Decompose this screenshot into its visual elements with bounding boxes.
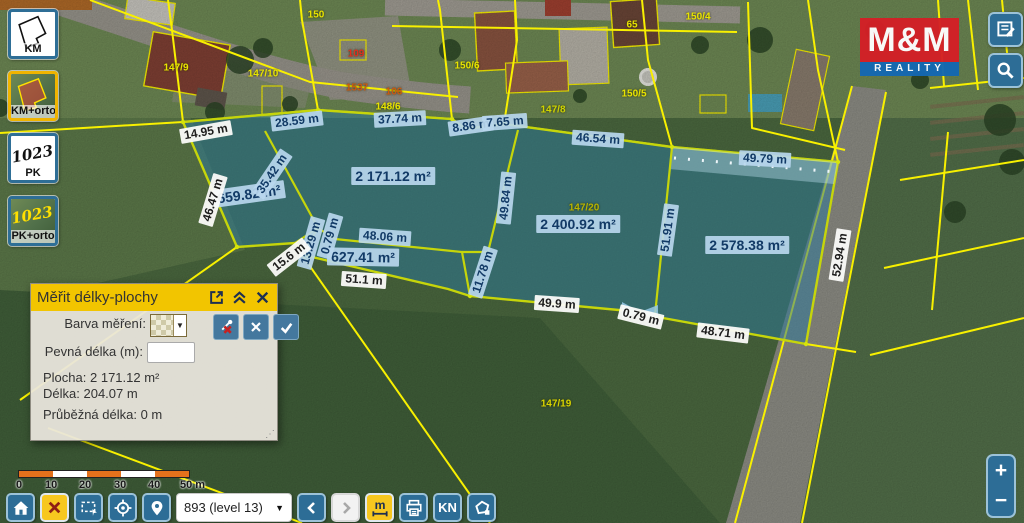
length-stat: Délka: 204.07 m: [43, 386, 138, 401]
layer-button-pk-orto[interactable]: 1023 PK+orto: [8, 196, 58, 246]
scale-tick: 10: [45, 479, 57, 491]
caret-down-icon: ▼: [275, 503, 284, 513]
measure-label: 49.9 m: [534, 295, 580, 313]
kn-button[interactable]: KN: [433, 493, 462, 522]
chevron-right-icon: [338, 500, 354, 516]
collapse-panel-button[interactable]: [230, 289, 248, 307]
printer-icon: [405, 499, 423, 517]
layer-label: PK: [11, 167, 55, 180]
map-level-select[interactable]: 893 (level 13) ▼: [176, 493, 292, 522]
target-icon: [114, 499, 132, 517]
parcel-label: 1537: [346, 83, 368, 94]
history-back-button[interactable]: [297, 493, 326, 522]
center-map-button[interactable]: [108, 493, 137, 522]
panel-titlebar[interactable]: Měřit délky-plochy: [31, 284, 277, 311]
measure-label: 49.79 m: [739, 150, 792, 168]
fixed-length-label: Pevná délka (m):: [45, 344, 143, 359]
check-icon: [279, 320, 294, 335]
aerial-map-canvas[interactable]: [0, 0, 1024, 523]
home-button[interactable]: [6, 493, 35, 522]
parcel-label: 147/9: [163, 63, 188, 74]
resize-handle[interactable]: ⋰: [265, 429, 275, 440]
measure-label: 627.41 m²: [327, 247, 399, 266]
measure-label: 37.74 m: [374, 110, 427, 128]
locate-button[interactable]: [142, 493, 171, 522]
zoom-in-button[interactable]: +: [988, 458, 1014, 484]
measure-label: 7.65 m: [482, 113, 528, 131]
parcel-label: 150/6: [454, 61, 479, 72]
area-stat: Plocha: 2 171.12 m²: [43, 370, 159, 385]
logo-reality: REALITY: [860, 62, 959, 76]
scale-tick: 50 m: [180, 479, 205, 491]
notes-button[interactable]: [988, 12, 1023, 47]
select-area-button[interactable]: [74, 493, 103, 522]
measure-panel: Měřit délky-plochy: [30, 283, 278, 441]
chevron-left-icon: [304, 500, 320, 516]
parcel-label: 150/4: [685, 12, 710, 23]
close-panel-button[interactable]: [253, 289, 271, 307]
delete-vertex-button[interactable]: [213, 314, 239, 340]
layer-label: PK+orto: [11, 230, 55, 243]
search-button[interactable]: [988, 53, 1023, 88]
map-pin-icon: [149, 500, 165, 516]
x-icon: [249, 320, 263, 334]
scale-tick-labels: 01020304050 m: [18, 478, 208, 490]
parcel-label: 147/10: [248, 69, 279, 80]
layer-label: KM: [11, 43, 55, 56]
svg-text:m: m: [374, 498, 385, 512]
map-stage: 147/9147/10150/665150/4150/5147/8148/615…: [0, 0, 1024, 523]
measure-icon: m: [370, 498, 390, 518]
layer-button-km[interactable]: KM: [8, 9, 58, 59]
dropdown-caret-icon: ▼: [173, 315, 186, 336]
clear-button[interactable]: [40, 493, 69, 522]
scale-bar: 01020304050 m: [18, 470, 208, 490]
parcel-label: 150: [308, 10, 325, 21]
scale-tick: 20: [79, 479, 91, 491]
scale-segments: [18, 470, 190, 478]
level-value: 893 (level 13): [184, 500, 275, 515]
zoom-control: + −: [986, 454, 1016, 518]
draw-polygon-button[interactable]: [467, 493, 496, 522]
color-label: Barva měření:: [64, 316, 146, 331]
red-x-icon: [47, 500, 62, 515]
parcel-label: 109: [348, 49, 365, 60]
fixed-length-input[interactable]: [147, 342, 195, 363]
parcel-label: 147/19: [541, 399, 572, 410]
open-in-new-icon: [209, 290, 224, 305]
open-in-new-window-button[interactable]: [207, 289, 225, 307]
close-icon: [255, 290, 270, 305]
polygon-icon: [473, 499, 491, 517]
measure-label: 51.1 m: [341, 271, 387, 289]
measure-tool-button[interactable]: m: [365, 493, 394, 522]
selection-rect-icon: [80, 499, 98, 517]
parcel-label: 150/5: [621, 89, 646, 100]
cancel-measure-button[interactable]: [243, 314, 269, 340]
scale-tick: 30: [114, 479, 126, 491]
confirm-measure-button[interactable]: [273, 314, 299, 340]
parcel-label: 147/8: [540, 105, 565, 116]
history-forward-button[interactable]: [331, 493, 360, 522]
zoom-out-button[interactable]: −: [988, 488, 1014, 514]
parcel-label: 147/20: [569, 203, 600, 214]
search-icon: [996, 61, 1015, 80]
notes-icon: [996, 20, 1015, 39]
parcel-label: 65: [626, 20, 637, 31]
bottom-toolbar: 893 (level 13) ▼ m: [6, 493, 496, 522]
layer-button-pk[interactable]: 1023 PK: [8, 133, 58, 183]
measure-label: 2 578.38 m²: [705, 236, 789, 254]
mm-reality-logo: M&M REALITY: [860, 18, 959, 76]
print-button[interactable]: [399, 493, 428, 522]
layer-label: KM+orto: [11, 105, 55, 118]
parcel-label: 106: [386, 87, 403, 98]
scale-tick: 0: [16, 479, 22, 491]
measure-color-dropdown[interactable]: ▼: [150, 314, 187, 337]
checker-swatch: [151, 315, 173, 336]
home-icon: [12, 499, 30, 517]
running-length-stat: Průběžná délka: 0 m: [43, 407, 162, 422]
double-chevron-up-icon: [232, 290, 247, 305]
measure-label: 2 400.92 m²: [536, 215, 620, 233]
measure-label: 2 171.12 m²: [351, 167, 435, 185]
panel-title: Měřit délky-plochy: [37, 289, 202, 306]
scale-tick: 40: [148, 479, 160, 491]
vertex-delete-icon: [218, 319, 235, 336]
kn-label: KN: [438, 500, 457, 515]
layer-button-km-orto[interactable]: KM+orto: [8, 71, 58, 121]
logo-mm: M&M: [860, 18, 959, 62]
